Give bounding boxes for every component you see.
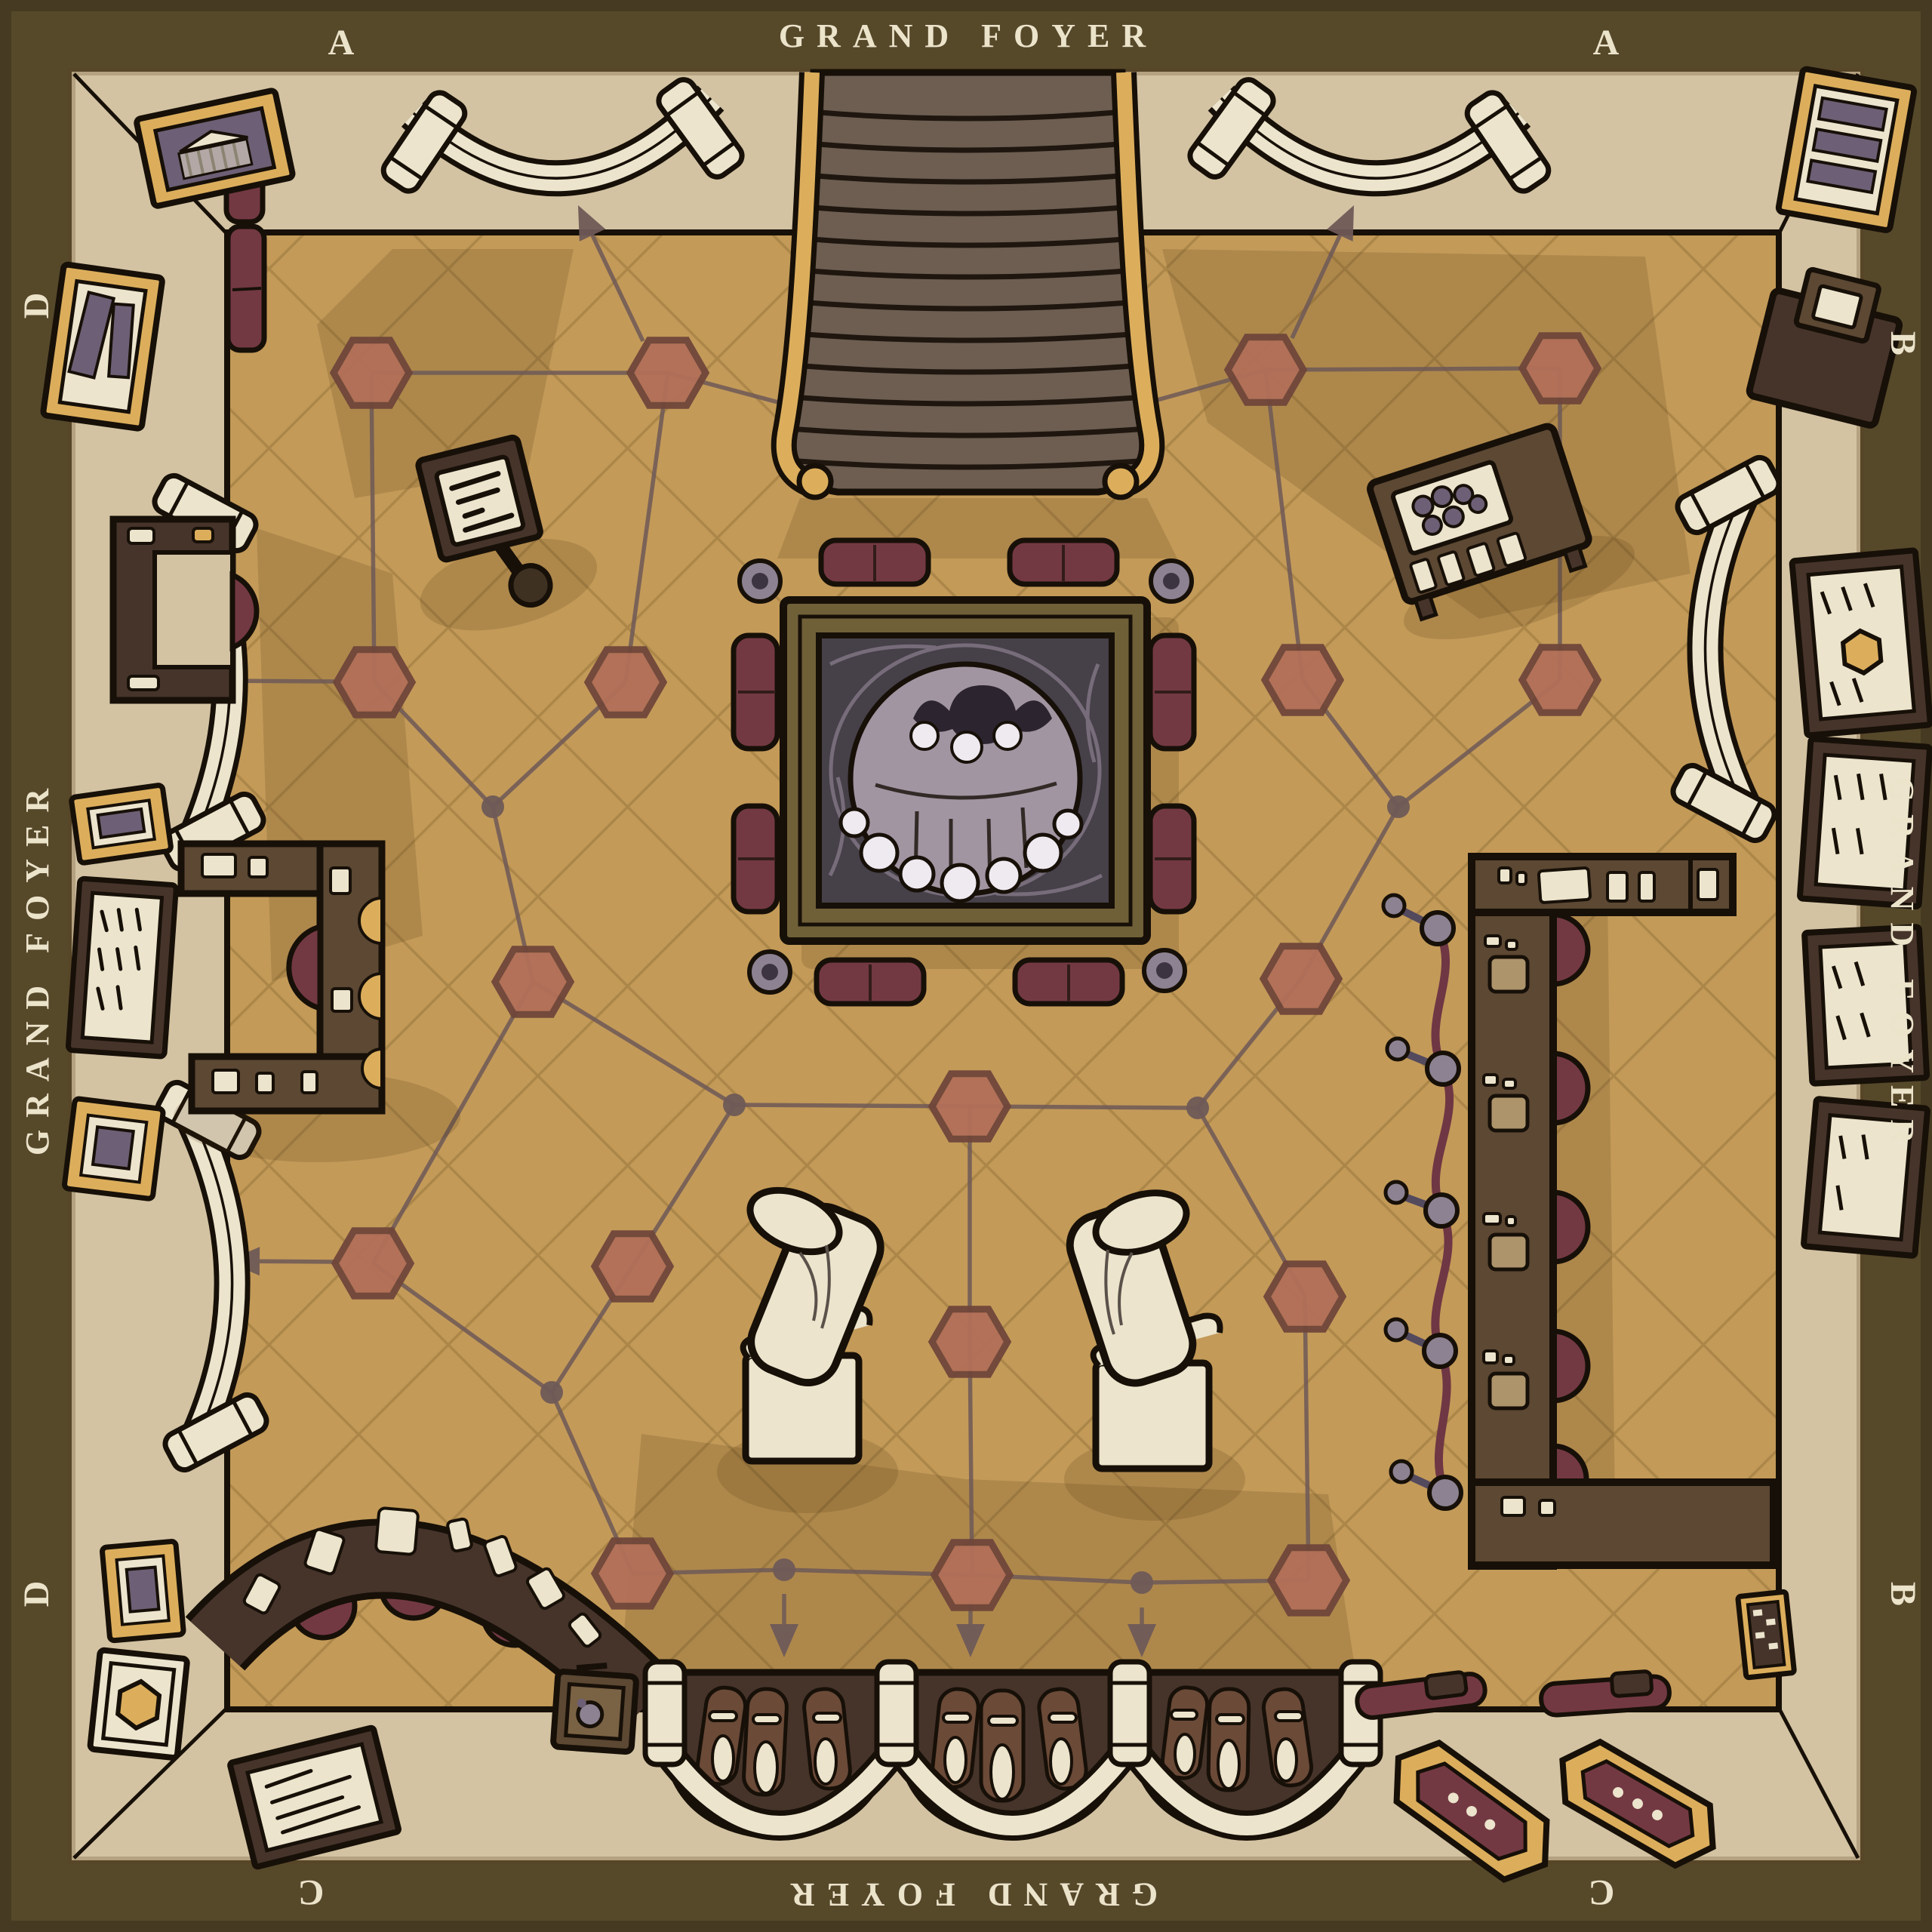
right-doc-seal xyxy=(1792,550,1930,735)
corner-letter-d1: D xyxy=(17,293,57,319)
edge-title-top: GRAND FOYER xyxy=(779,17,1158,54)
path-node-hex[interactable] xyxy=(495,949,571,1015)
path-node-dot[interactable] xyxy=(481,795,504,818)
left-plaque-2 xyxy=(64,1098,164,1198)
corner-letter-c2: C xyxy=(1589,1872,1615,1912)
path-node-hex[interactable] xyxy=(1522,336,1598,401)
left-doc-frame xyxy=(68,878,177,1057)
path-node-hex[interactable] xyxy=(630,340,706,406)
path-edge xyxy=(1266,368,1560,370)
hex-medallion-plaque xyxy=(90,1650,187,1758)
left-plaque-3 xyxy=(102,1541,183,1641)
path-node-hex[interactable] xyxy=(595,1234,670,1300)
path-node-hex[interactable] xyxy=(595,1541,670,1607)
path-node-dot[interactable] xyxy=(540,1381,563,1404)
edge-title-left: GRAND FOYER xyxy=(19,777,56,1155)
exit-arrow-shaft xyxy=(260,1261,337,1262)
path-node-dot[interactable] xyxy=(1387,795,1410,818)
path-node-hex[interactable] xyxy=(1271,1548,1346,1614)
mouse-crate xyxy=(553,1663,638,1752)
left-alcove-hearth xyxy=(113,519,257,700)
right-frame-tall xyxy=(1778,69,1915,231)
path-node-hex[interactable] xyxy=(1228,337,1303,403)
grand-staircase xyxy=(784,72,1152,497)
path-node-dot[interactable] xyxy=(723,1094,746,1116)
path-node-hex[interactable] xyxy=(588,650,663,715)
left-frame-tall xyxy=(43,264,163,429)
central-fountain xyxy=(783,600,1179,969)
path-node-hex[interactable] xyxy=(335,1231,411,1297)
right-small-picture xyxy=(1738,1592,1795,1678)
path-node-hex[interactable] xyxy=(334,340,409,406)
path-node-hex[interactable] xyxy=(1267,1264,1343,1330)
path-node-hex[interactable] xyxy=(932,1309,1008,1375)
path-node-hex[interactable] xyxy=(1265,648,1340,713)
grand-foyer-map: GRAND FOYER GRAND FOYER GRAND FOYER GRAN… xyxy=(0,0,1932,1932)
path-node-dot[interactable] xyxy=(1186,1097,1209,1119)
corner-letter-a1: A xyxy=(328,23,355,63)
path-node-hex[interactable] xyxy=(1263,946,1339,1012)
edge-title-right: GRAND FOYER xyxy=(1884,777,1921,1155)
path-node-dot[interactable] xyxy=(1131,1571,1153,1594)
corner-letter-b2: B xyxy=(1883,1582,1923,1606)
corner-letter-a2: A xyxy=(1593,23,1620,63)
path-node-hex[interactable] xyxy=(934,1543,1010,1608)
path-node-hex[interactable] xyxy=(337,650,412,715)
left-plaque-1 xyxy=(71,785,171,863)
corner-letter-b1: B xyxy=(1883,331,1923,355)
exit-arrow-shaft xyxy=(246,681,336,681)
path-node-dot[interactable] xyxy=(773,1558,795,1581)
path-node-hex[interactable] xyxy=(932,1074,1008,1140)
edge-title-bottom: GRAND FOYER xyxy=(779,1876,1158,1913)
corner-letter-d2: D xyxy=(17,1581,57,1607)
path-node-hex[interactable] xyxy=(1522,648,1598,713)
corner-letter-c1: C xyxy=(298,1872,325,1912)
